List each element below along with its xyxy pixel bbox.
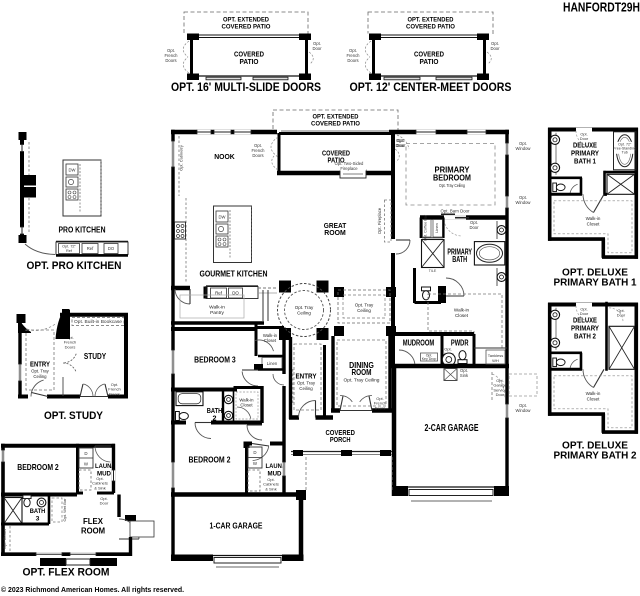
svg-text:BATH: BATH (452, 255, 467, 264)
svg-text:OPT. EXTENDED: OPT. EXTENDED (313, 114, 359, 121)
svg-text:Door: Door (496, 392, 505, 397)
svg-text:DO: DO (108, 246, 115, 251)
svg-text:PATIO: PATIO (328, 158, 345, 165)
svg-text:Opt. Closet: Opt. Closet (2, 528, 7, 549)
svg-text:Door: Door (312, 46, 322, 51)
svg-text:2-CAR GARAGE: 2-CAR GARAGE (425, 423, 479, 434)
svg-text:BEDROOM 3: BEDROOM 3 (194, 354, 236, 364)
svg-text:OPT. 12' CENTER-MEET DOORS: OPT. 12' CENTER-MEET DOORS (350, 82, 512, 94)
svg-text:DW: DW (69, 168, 76, 173)
svg-text:Door: Door (490, 46, 500, 51)
svg-text:WH: WH (492, 358, 499, 363)
svg-text:COVERED PATIO: COVERED PATIO (406, 24, 455, 31)
svg-text:Opt. Tray: Opt. Tray (31, 369, 50, 374)
svg-text:Opt. Cabinetry: Opt. Cabinetry (179, 145, 184, 171)
svg-text:Opt. Tray: Opt. Tray (355, 303, 374, 308)
svg-text:DW: DW (219, 215, 226, 220)
svg-text:Doors: Doors (65, 344, 76, 349)
svg-text:Walk-in: Walk-in (586, 391, 601, 396)
svg-text:Window: Window (516, 408, 532, 413)
svg-text:Ceiling: Ceiling (33, 374, 47, 379)
svg-text:Opt. Tray: Opt. Tray (295, 305, 314, 310)
svg-text:ROOM: ROOM (352, 368, 372, 377)
svg-text:LAUN/: LAUN/ (95, 463, 113, 470)
svg-text:Doors: Doors (165, 58, 176, 63)
svg-text:D: D (253, 450, 256, 455)
svg-text:ENTRY: ENTRY (30, 360, 50, 369)
svg-text:BATH 2: BATH 2 (574, 331, 596, 340)
svg-text:Door: Door (617, 312, 626, 317)
svg-text:3: 3 (36, 516, 40, 523)
svg-text:Window: Window (516, 146, 532, 151)
svg-text:Closet: Closet (264, 338, 277, 343)
svg-text:OPT. EXTENDED: OPT. EXTENDED (408, 17, 454, 24)
svg-text:Ceiling: Ceiling (357, 308, 371, 313)
svg-text:Pantry: Pantry (210, 310, 224, 316)
svg-text:Opt. 72": Opt. 72" (62, 245, 76, 249)
svg-text:Closet: Closet (587, 221, 601, 226)
svg-text:GOURMET KITCHEN: GOURMET KITCHEN (200, 269, 268, 279)
svg-text:PATIO: PATIO (420, 59, 440, 66)
svg-text:Closet: Closet (240, 403, 253, 408)
svg-text:TILE: TILE (429, 269, 437, 273)
svg-text:Doors: Doors (375, 405, 386, 410)
svg-text:Closet: Closet (455, 313, 469, 318)
svg-text:OPT. FLEX ROOM: OPT. FLEX ROOM (23, 567, 110, 579)
svg-text:BEDROOM 2: BEDROOM 2 (17, 462, 59, 472)
svg-text:Opt. Tray Ceiling: Opt. Tray Ceiling (344, 378, 380, 383)
svg-text:OPT. EXTENDED: OPT. EXTENDED (223, 17, 269, 24)
svg-text:NOOK: NOOK (214, 152, 235, 161)
svg-text:Opt. Tray: Opt. Tray (297, 381, 316, 386)
svg-text:Ref: Ref (66, 249, 73, 253)
svg-text:BEDROOM: BEDROOM (433, 173, 471, 183)
svg-text:PRIMARY BATH 2: PRIMARY BATH 2 (554, 451, 637, 462)
svg-text:MUDROOM: MUDROOM (403, 338, 435, 347)
svg-text:BATH: BATH (30, 508, 46, 515)
svg-text:Key Drop: Key Drop (422, 357, 437, 361)
svg-text:PRO KITCHEN: PRO KITCHEN (59, 225, 106, 234)
svg-text:Fireplace: Fireplace (340, 166, 358, 171)
svg-text:ROOM: ROOM (81, 526, 105, 536)
svg-text:Opt. Barn Door: Opt. Barn Door (441, 209, 470, 214)
svg-text:LAUN/: LAUN/ (266, 463, 284, 470)
svg-text:1-CAR GARAGE: 1-CAR GARAGE (210, 521, 263, 531)
svg-text:COVERED: COVERED (414, 52, 444, 59)
svg-text:PATIO: PATIO (240, 59, 260, 66)
svg-text:COVERED PATIO: COVERED PATIO (311, 121, 360, 128)
svg-text:Linen: Linen (267, 361, 278, 366)
svg-text:D: D (84, 451, 87, 456)
svg-text:Door: Door (100, 501, 109, 506)
svg-text:COVERED PATIO: COVERED PATIO (222, 24, 271, 31)
svg-text:Opt. Tray Ceiling: Opt. Tray Ceiling (439, 183, 465, 188)
svg-text:Doors: Doors (347, 58, 358, 63)
svg-text:© 2023 Richmond American Homes: © 2023 Richmond American Homes. All righ… (1, 586, 184, 594)
svg-text:PORCH: PORCH (330, 435, 351, 444)
svg-text:Closet: Closet (587, 396, 601, 401)
svg-text:Tub: Tub (622, 151, 628, 155)
svg-text:OPT. 16' MULTI-SLIDE DOORS: OPT. 16' MULTI-SLIDE DOORS (171, 82, 321, 94)
svg-text:STUDY: STUDY (84, 351, 107, 361)
svg-text:Opt. Fireplace: Opt. Fireplace (377, 207, 382, 234)
svg-text:Ceiling: Ceiling (299, 386, 313, 391)
svg-text:Opt. Built-in Bookcase: Opt. Built-in Bookcase (74, 319, 123, 324)
svg-text:Walk-in: Walk-in (454, 308, 470, 313)
svg-text:Doors: Doors (252, 153, 263, 158)
svg-text:Ceiling: Ceiling (297, 311, 311, 316)
svg-text:Opt. Coffee Bar: Opt. Coffee Bar (424, 214, 428, 241)
svg-text:& Sink: & Sink (94, 485, 106, 490)
svg-text:BATH 1: BATH 1 (574, 156, 596, 165)
svg-text:Door: Door (396, 143, 406, 148)
svg-text:Walk-in: Walk-in (209, 305, 225, 311)
svg-text:FLEX: FLEX (83, 516, 103, 526)
svg-text:ENTRY: ENTRY (296, 372, 317, 381)
svg-text:Window: Window (516, 200, 532, 205)
svg-text:PWDR: PWDR (451, 338, 469, 347)
svg-text:Sink: Sink (460, 373, 469, 378)
svg-text:ROOM: ROOM (324, 228, 346, 237)
svg-text:Door: Door (469, 225, 479, 230)
svg-text:Doors: Doors (109, 391, 120, 396)
svg-text:HANFORDT29H: HANFORDT29H (563, 0, 640, 15)
svg-text:COVERED: COVERED (322, 151, 350, 158)
svg-text:BEDROOM 2: BEDROOM 2 (189, 454, 231, 464)
svg-text:Linen: Linen (434, 223, 439, 233)
svg-text:OPT. PRO KITCHEN: OPT. PRO KITCHEN (27, 260, 122, 272)
svg-text:Ref: Ref (87, 246, 94, 251)
svg-text:& Sink: & Sink (265, 486, 277, 491)
svg-text:OPT. STUDY: OPT. STUDY (44, 410, 104, 422)
svg-text:Walk-in: Walk-in (586, 216, 601, 221)
svg-text:Opt. Wet Bar: Opt. Wet Bar (62, 498, 67, 522)
svg-text:COVERED: COVERED (234, 52, 264, 59)
svg-text:PRIMARY BATH 1: PRIMARY BATH 1 (554, 278, 637, 289)
